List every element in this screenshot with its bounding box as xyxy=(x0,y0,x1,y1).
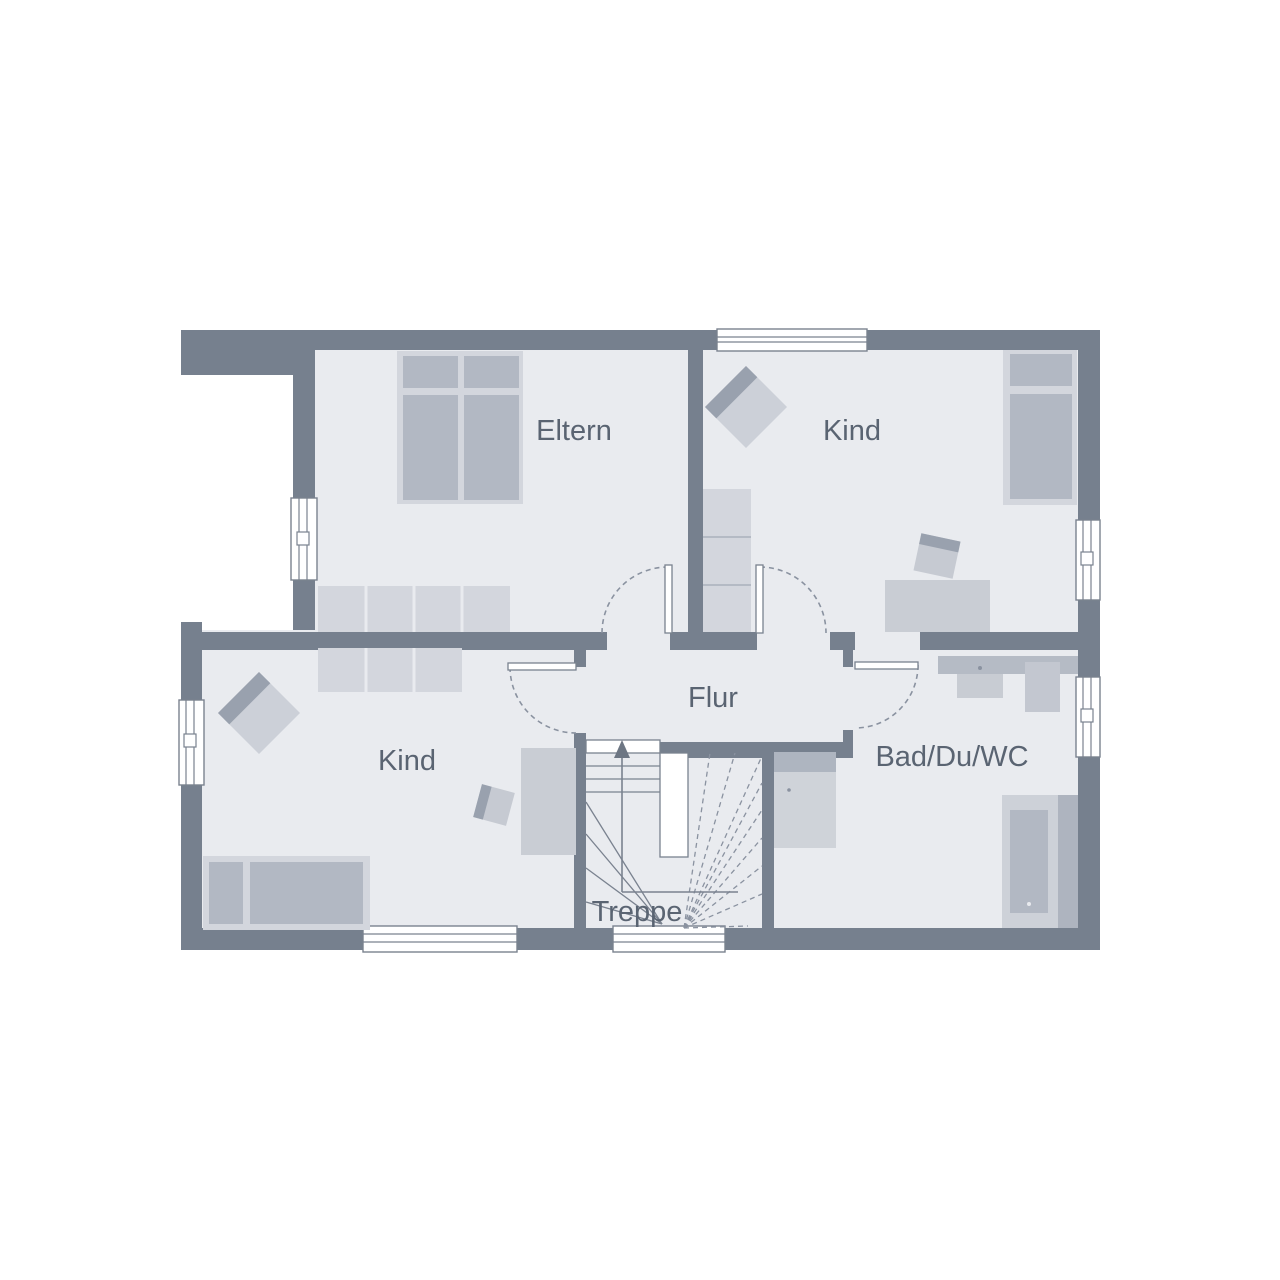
wall-flur-south-stub xyxy=(843,730,853,742)
window-bad-right xyxy=(1076,677,1100,757)
single-bed-kind-top xyxy=(1003,350,1077,505)
wall-exterior-top xyxy=(181,330,1100,350)
room-label-kind-bottom: Kind xyxy=(378,745,436,777)
toilet xyxy=(774,752,836,848)
wall-exterior-left-lower xyxy=(181,622,202,950)
cabinet-shelf xyxy=(703,489,751,632)
bathtub xyxy=(1002,795,1078,928)
room-label-eltern: Eltern xyxy=(536,415,612,447)
window-kind-top-right xyxy=(1076,520,1100,600)
wall-bad-north xyxy=(920,632,1078,650)
window-kind-bottom-left xyxy=(179,700,204,785)
floorplan-drawing: Eltern Kind Flur Bad/Du/WC Kind Treppe xyxy=(0,0,1280,1280)
window-top-center xyxy=(717,329,867,351)
window-eltern-left xyxy=(291,498,317,580)
shower-column xyxy=(1025,662,1060,712)
wall-flur-north-east xyxy=(830,632,855,650)
single-bed-kind-bottom xyxy=(203,856,370,930)
stair-newel xyxy=(660,753,688,857)
window-kind-bottom-south xyxy=(363,926,517,952)
room-label-flur: Flur xyxy=(688,682,738,714)
wall-flur-north-center xyxy=(670,632,757,650)
desk-kind-bottom xyxy=(521,748,576,855)
room-label-bad: Bad/Du/WC xyxy=(875,741,1028,773)
wall-flur-north-west xyxy=(181,632,607,650)
desk-chair-kind-top xyxy=(913,533,960,578)
wall-exterior-right xyxy=(1078,330,1100,950)
double-bed xyxy=(397,351,523,504)
wardrobe-kind-bottom xyxy=(318,648,462,692)
room-label-kind-top: Kind xyxy=(823,415,881,447)
floorplan-page: Eltern Kind Flur Bad/Du/WC Kind Treppe xyxy=(0,0,1280,1280)
wall-bad-door-stub xyxy=(843,650,853,667)
room-label-treppe: Treppe xyxy=(592,896,683,928)
wall-divider-eltern-kind xyxy=(688,350,703,650)
desk-kind-top xyxy=(885,580,990,632)
window-treppe-south xyxy=(613,926,725,952)
wall-stair-east xyxy=(762,742,774,928)
wardrobe-eltern xyxy=(318,586,510,632)
wall-exterior-left-upper xyxy=(293,350,315,630)
